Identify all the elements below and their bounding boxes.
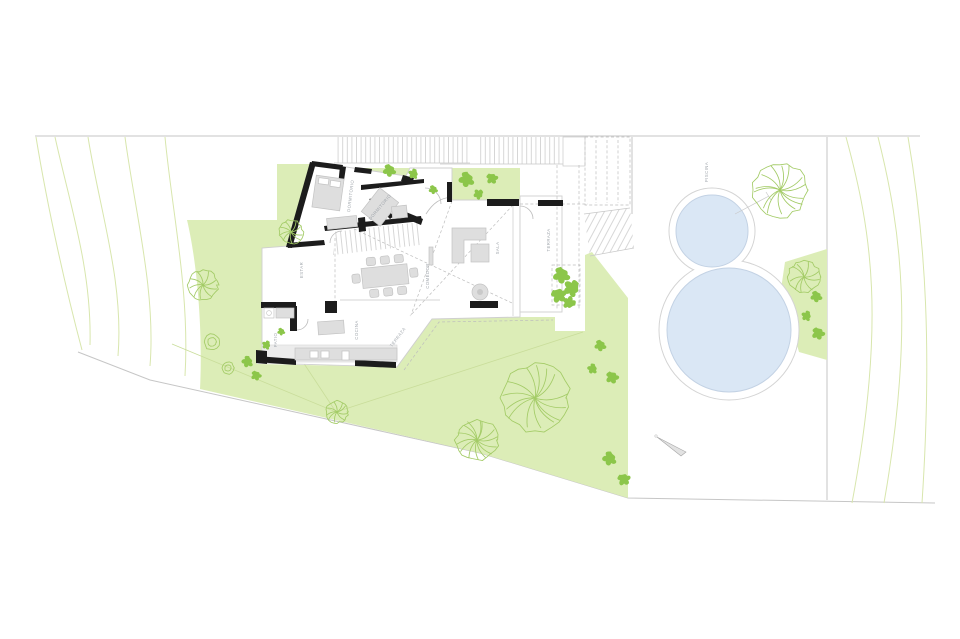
room-label-sala: SALA	[495, 242, 500, 255]
room-label-terraza-east: TERRAZA	[546, 228, 551, 251]
fire-table-center	[477, 289, 483, 295]
room-label-estar: ESTAR	[299, 262, 304, 278]
tree-icon	[752, 164, 808, 218]
pool	[659, 188, 799, 400]
entry-courtyard-garden	[452, 168, 520, 200]
bed	[312, 175, 344, 211]
sink	[342, 351, 349, 360]
room-label-cocina: COCINA	[354, 320, 359, 339]
washer	[264, 308, 274, 318]
cooktop	[310, 351, 318, 358]
tv-console	[429, 247, 433, 265]
contour-lines-right	[846, 137, 927, 503]
dining-table	[361, 264, 409, 289]
pool-water-large	[667, 268, 791, 392]
kitchen-island	[318, 320, 345, 335]
armchair	[471, 244, 489, 262]
room-label-piscina: PISCINA	[704, 162, 709, 182]
site-plan-canvas: DORMITORIO DORMITORIO ESTAR COMEDOR SALA…	[0, 0, 960, 639]
garden-stairs	[584, 208, 634, 256]
oven	[321, 351, 329, 358]
laundry-counter	[276, 308, 294, 318]
wardrobe	[391, 205, 407, 219]
pool-water-small	[676, 195, 748, 267]
pointer-marker	[655, 435, 686, 456]
contour-lines-left	[36, 137, 186, 376]
room-label-patio: PATIO	[273, 333, 278, 348]
room-label-comedor: COMEDOR	[425, 263, 430, 289]
site-plan-page: DORMITORIO DORMITORIO ESTAR COMEDOR SALA…	[0, 0, 960, 639]
